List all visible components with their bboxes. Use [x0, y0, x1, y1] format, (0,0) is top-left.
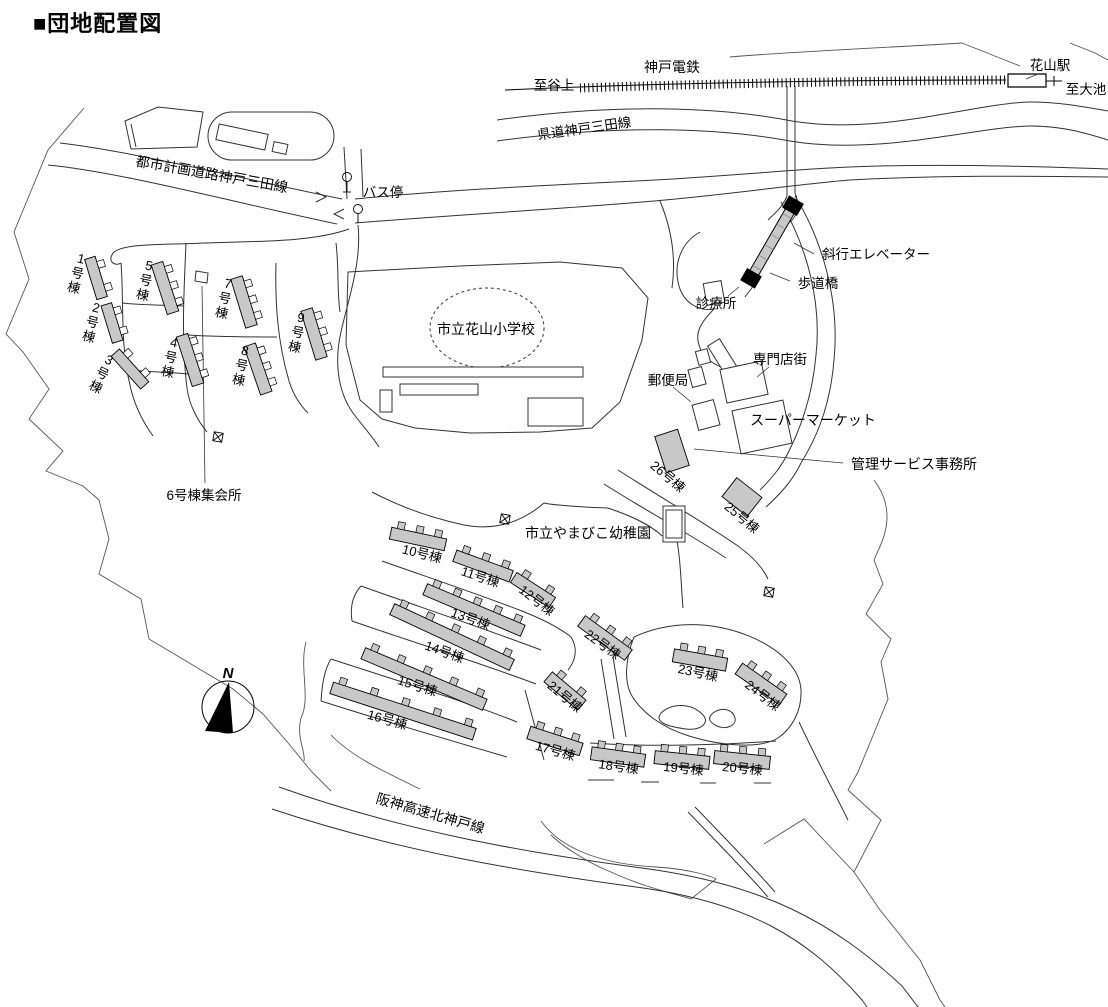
loop-south-exit	[799, 722, 848, 820]
expressway-upper	[279, 787, 918, 1007]
kindergarten-building-inner	[666, 510, 682, 538]
leader-lines	[202, 74, 1038, 483]
building-unit-box	[113, 306, 122, 315]
building-label: 3号棟	[87, 350, 118, 396]
crossing-road-b	[695, 807, 775, 892]
building-unit-box	[615, 743, 623, 751]
loop-blob-1	[659, 705, 705, 729]
building-unit-box	[319, 327, 328, 336]
building-unit-box	[324, 343, 333, 352]
leader-pedestrian-bridge	[770, 273, 790, 281]
terrain-crossing	[764, 819, 854, 872]
building-1	[101, 301, 130, 344]
building-6	[244, 341, 279, 395]
meeting-hall-label: 6号棟集会所	[166, 488, 241, 503]
building-unit-box	[598, 741, 606, 749]
building-unit-box	[254, 311, 263, 320]
direction-oike-label: 至大池	[1066, 82, 1107, 97]
arcade-building-4	[688, 366, 706, 387]
south-road-lower	[355, 176, 1108, 223]
building-unit-box	[119, 326, 128, 335]
map-labels: 神戸電鉄 至谷上 花山駅 至大池 県道神戸三田線 都市計画道路神戸三田線 阪神高…	[135, 58, 1107, 836]
building-unit-box	[661, 744, 669, 752]
school-east-road	[660, 201, 674, 288]
building-unit-box	[314, 311, 323, 320]
expressway-lower	[272, 809, 867, 1007]
building-unit-box	[244, 279, 253, 288]
leader-clinic	[728, 287, 739, 296]
bus-stop-sign-icon	[343, 173, 352, 193]
loop-blob-2	[710, 709, 736, 727]
boxed-x-symbol	[213, 432, 223, 442]
terrain-left-boundary	[6, 108, 331, 791]
depot-small	[272, 142, 288, 155]
crossing-road-a	[688, 812, 768, 897]
building-0	[85, 254, 114, 299]
building-unit-box	[720, 744, 728, 752]
map-canvas: N 1号棟2号棟3号棟4号棟5号棟7号棟8号棟9号棟10号棟11号棟12号棟13…	[0, 0, 1108, 1007]
depot-building	[216, 124, 268, 150]
management-office-label: 管理サービス事務所	[851, 456, 977, 472]
compass-north-label: N	[223, 665, 235, 682]
building-unit-box	[715, 649, 723, 657]
vert-road-21-a	[601, 659, 614, 739]
map-symbols	[213, 173, 774, 598]
building-unit-box	[739, 746, 747, 754]
station-label: 花山駅	[1030, 58, 1071, 73]
south-road-upper	[355, 165, 1108, 199]
building-unit-box	[416, 526, 424, 534]
school-building-2	[400, 384, 478, 395]
bus-stop-sign-icon	[354, 205, 363, 224]
row-cap-2	[321, 659, 331, 701]
junction-arrow-left	[334, 209, 344, 219]
railway-east-stub	[1046, 76, 1062, 86]
building-unit-box	[680, 643, 688, 651]
supermarket-label: スーパーマーケット	[750, 412, 876, 428]
row-cap-3	[568, 637, 575, 670]
building-unit-box	[104, 282, 113, 291]
expressway-lines	[272, 787, 918, 1007]
railway-name-label: 神戸電鉄	[644, 59, 700, 75]
terrain-station-slope	[962, 43, 1020, 66]
building-unit-box	[698, 748, 706, 756]
vert-road-21-b	[613, 657, 626, 737]
building-2	[111, 344, 154, 389]
leader-post-office	[673, 387, 691, 402]
railway	[505, 74, 1062, 90]
building-unit-box	[434, 530, 442, 538]
kinder-north-road	[372, 492, 608, 527]
building-label: 19号棟	[663, 759, 705, 778]
building-unit-box	[249, 295, 258, 304]
pentagon-lot	[125, 107, 203, 149]
building-unit-box	[397, 522, 405, 530]
clinic-label: 診療所	[696, 295, 737, 311]
curve-to-25-a	[766, 463, 801, 507]
elevator-band	[750, 208, 795, 275]
terrain-right-boundary	[848, 480, 945, 1007]
building-5	[231, 274, 264, 328]
direction-tanigami-label: 至谷上	[534, 78, 575, 93]
terrain-bottom-blob	[541, 821, 716, 899]
building-unit-box	[758, 748, 766, 756]
school-building-1	[383, 367, 583, 377]
terrain-hill-top	[730, 43, 962, 57]
lane-conn3	[188, 335, 277, 337]
inclined-elevator	[740, 195, 804, 288]
building-unit-box	[97, 260, 106, 269]
expressway-label: 阪神高速北神戸線	[374, 790, 486, 836]
shopping-arcade-label: 専門店街	[753, 352, 807, 367]
school-west-road	[338, 225, 379, 447]
terrain-topright	[1070, 43, 1108, 60]
bus-stop-label: バス停	[363, 184, 404, 200]
leader-management-office	[694, 449, 843, 463]
terrain-wavy-compass	[300, 642, 306, 761]
post-office-building	[692, 400, 720, 431]
site-map: ■団地配置図	[0, 0, 1108, 1007]
building-label: 20号棟	[722, 759, 764, 778]
school-gym	[528, 398, 583, 426]
elementary-school-label: 市立花山小学校	[437, 321, 535, 337]
lane-d	[336, 243, 340, 312]
loop-23-24	[627, 625, 801, 745]
inclined-elevator-label: 斜行エレベーター	[822, 247, 930, 262]
arcade-building-3	[695, 349, 710, 366]
station-rect	[1008, 74, 1046, 87]
building-7	[301, 306, 334, 360]
terrain-below-16	[331, 735, 420, 789]
building-unit-box	[698, 646, 706, 654]
city-planning-road-label: 都市計画道路神戸三田線	[135, 153, 289, 195]
kinder-loop-link	[677, 541, 683, 608]
kindergarten-label: 市立やまびこ幼稚園	[525, 525, 651, 541]
school-building-3	[380, 390, 392, 412]
post-office-label: 郵便局	[648, 373, 689, 388]
pedestrian-bridge-label: 歩道橋	[798, 276, 839, 291]
meeting-hall-building	[195, 271, 208, 283]
boxed-x-symbol	[500, 514, 510, 524]
building-label: 1号棟	[66, 250, 90, 297]
row-cap-1	[351, 586, 361, 621]
leader-meeting-hall	[202, 286, 205, 483]
building-unit-box	[633, 746, 641, 754]
prefectural-road-label: 県道神戸三田線	[537, 114, 633, 142]
building-3	[176, 331, 210, 386]
building-unit-box	[679, 746, 687, 754]
boxed-x-symbol	[764, 587, 774, 597]
